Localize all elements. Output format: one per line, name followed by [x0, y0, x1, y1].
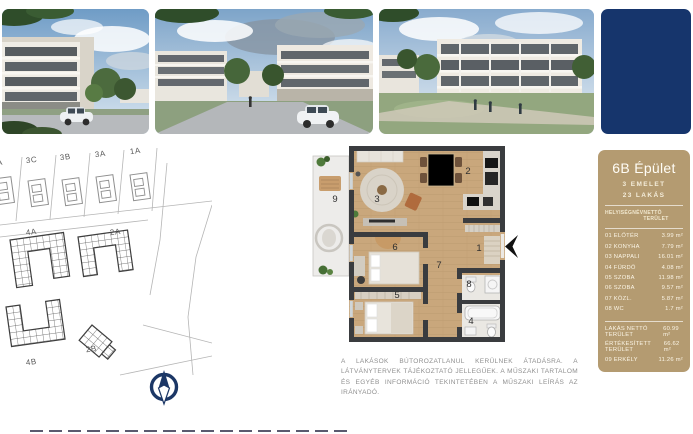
- detailed-buildings: [6, 230, 133, 362]
- table-row: 02 KONYHA7.79 m²: [605, 244, 683, 250]
- table-row: 05 SZOBA11.98 m²: [605, 275, 683, 281]
- room-8-label: 8: [466, 279, 471, 290]
- room-area: 9.57 m²: [662, 285, 683, 291]
- building-right: [277, 45, 373, 103]
- building-outline: [0, 177, 14, 205]
- room-4-label: 4: [468, 316, 473, 327]
- divider: [605, 205, 683, 206]
- room-area: 7.79 m²: [662, 244, 683, 250]
- summary-name: LAKÁS NETTÓ TERÜLET: [605, 326, 663, 338]
- table-row: 01 ELŐTÉR3.99 m²: [605, 233, 683, 239]
- building-floors: 3 EMELET: [605, 181, 683, 188]
- room-area: 3.99 m²: [662, 233, 683, 239]
- building-main: [437, 39, 582, 95]
- table-row: 07 KÖZL.5.87 m²: [605, 296, 683, 302]
- building-outline: [96, 175, 116, 203]
- floor-plan: 9 3 2 1 6 7 8 5 4: [311, 146, 523, 348]
- render-photo-1-art: [2, 9, 149, 134]
- room-2-label: 2: [465, 166, 470, 177]
- summary-area: 60.99 m²: [663, 326, 683, 338]
- room-name: 08 WC: [605, 306, 624, 312]
- divider: [605, 228, 683, 229]
- building-outline: [62, 178, 82, 206]
- table-row: 06 SZOBA9.57 m²: [605, 285, 683, 291]
- compass-needle-south: [159, 385, 170, 404]
- navy-accent-box: [601, 9, 691, 134]
- col-room-name: HELYISÉGNÉV: [605, 210, 643, 222]
- label-4a: 4A: [25, 227, 37, 237]
- building-block: [2, 37, 94, 111]
- render-photo-3: [379, 9, 594, 134]
- room-area: 11.98 m²: [659, 275, 683, 281]
- room-area: 16.01 m²: [658, 254, 683, 260]
- label-3a: 3A: [94, 149, 106, 159]
- entrance-arrow: [505, 235, 518, 258]
- room-7-label: 7: [436, 260, 441, 271]
- summary-row: 09 ERKÉLY11.26 m²: [605, 357, 683, 363]
- divider: [605, 321, 683, 322]
- summary-row: ÉRTÉKESÍTETT TERÜLET66.62 m²: [605, 341, 683, 353]
- table-row: 08 WC1.7 m²: [605, 306, 683, 312]
- room-3-label: 3: [374, 194, 379, 205]
- building-left: [155, 51, 227, 103]
- table-row: 04 FÜRDŐ4.08 m²: [605, 265, 683, 271]
- site-plan: A 3C 3B 3A 1A 4A 2A 2B 4B: [0, 145, 212, 383]
- room-name: 03 NAPPALI: [605, 254, 640, 260]
- label-2b: 2B: [85, 344, 97, 354]
- room-5-label: 5: [394, 290, 399, 301]
- room-area: 5.87 m²: [662, 296, 683, 302]
- col-net-area: NETTÓ TERÜLET: [643, 210, 683, 222]
- building-outline: [28, 179, 48, 207]
- table-row: 03 NAPPALI16.01 m²: [605, 254, 683, 260]
- label-2a: 2A: [109, 227, 121, 237]
- room-name: 01 ELŐTÉR: [605, 233, 639, 239]
- label-cut: A: [0, 158, 4, 168]
- label-3b: 3B: [59, 152, 71, 162]
- summary-area: 11.26 m²: [659, 357, 683, 363]
- table-header: HELYISÉGNÉV NETTÓ TERÜLET: [605, 210, 683, 222]
- building-outline: [130, 173, 150, 201]
- room-name: 06 SZOBA: [605, 285, 635, 291]
- room-area: 4.08 m²: [662, 265, 683, 271]
- label-4b: 4B: [25, 357, 37, 367]
- room-area: 1.7 m²: [665, 306, 683, 312]
- render-photo-2: [155, 9, 373, 134]
- room-name: 07 KÖZL.: [605, 296, 632, 302]
- label-3c: 3C: [25, 155, 37, 165]
- room-name: 02 KONYHA: [605, 244, 640, 250]
- compass: [145, 366, 183, 408]
- room-name: 05 SZOBA: [605, 275, 635, 281]
- summary-name: 09 ERKÉLY: [605, 357, 638, 363]
- building-units: 23 LAKÁS: [605, 192, 683, 199]
- room-6-label: 6: [392, 242, 397, 253]
- balcony: [313, 156, 349, 276]
- building-title: 6B Épület: [605, 160, 683, 176]
- room-9-label: 9: [332, 194, 337, 205]
- summary-name: ÉRTÉKESÍTETT TERÜLET: [605, 341, 664, 353]
- render-photo-2-art: [155, 9, 373, 134]
- brochure-page: 6B Épület 3 EMELET 23 LAKÁS HELYISÉGNÉV …: [0, 0, 693, 434]
- summary-row: LAKÁS NETTÓ TERÜLET60.99 m²: [605, 326, 683, 338]
- room5-furniture: [355, 292, 421, 334]
- room-name: 04 FÜRDŐ: [605, 265, 636, 271]
- summary-area: 66.62 m²: [664, 341, 683, 353]
- apartment-info-panel: 6B Épület 3 EMELET 23 LAKÁS HELYISÉGNÉV …: [598, 150, 690, 372]
- label-1a: 1A: [129, 146, 141, 156]
- disclaimer-text: A LAKÁSOK BÚTOROZATLANUL KERÜLNEK ÁTADÁS…: [341, 357, 578, 399]
- cropped-footer-line: [30, 430, 352, 432]
- room-1-label: 1: [476, 243, 481, 254]
- render-photo-3-art: [379, 9, 594, 134]
- render-photo-1: [2, 9, 149, 134]
